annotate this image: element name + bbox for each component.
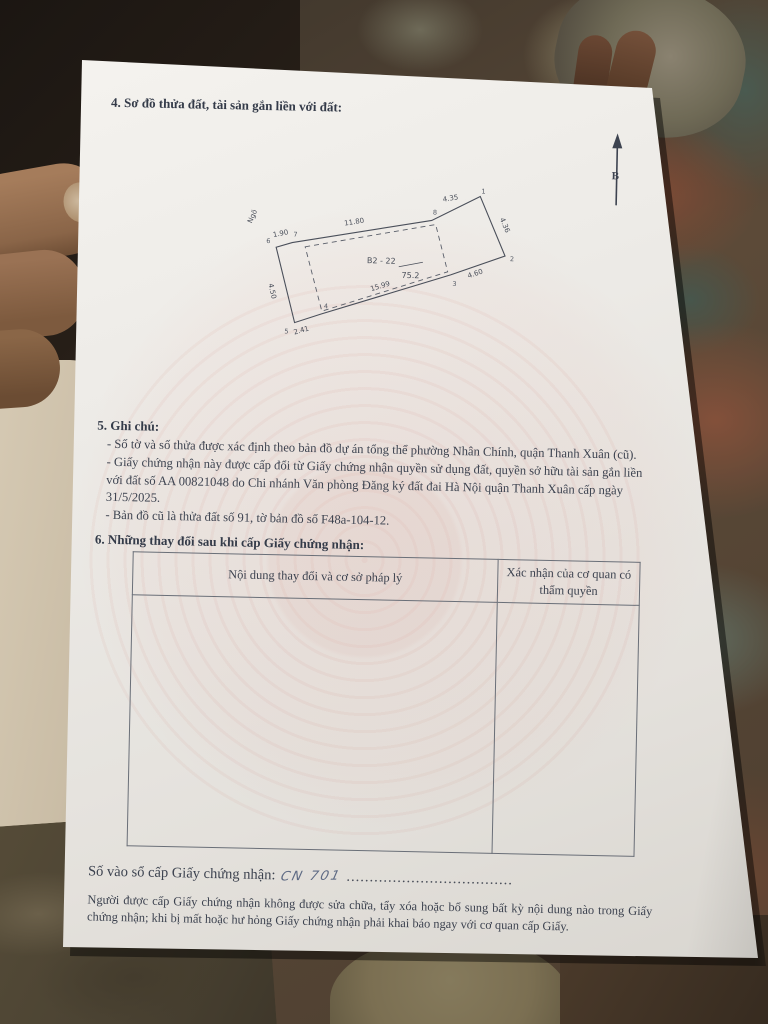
change-content-cell [127,595,497,854]
vertex-label: 5 [284,327,288,335]
certificate-content: 4. Sơ đồ thửa đất, tài sản gắn liền với … [46,54,677,977]
edge-label: 4.35 [442,193,459,203]
edge-label: 4.60 [467,268,484,281]
street-label: Ngõ [246,208,259,224]
vertex-label: 2 [510,255,514,263]
changes-table: Nội dung thay đổi và cơ sở pháp lý Xác n… [127,551,641,857]
vertex-label: 8 [433,208,437,216]
serial-label: Số vào sổ cấp Giấy chứng nhận: [88,863,276,883]
col-authority-confirm: Xác nhận của cơ quan có thẩm quyền [497,559,640,605]
serial-handwritten-value: CN 701 [279,868,343,887]
building-footprint-dashed [304,222,449,314]
section4-heading: 4. Sơ đồ thửa đất, tài sản gắn liền với … [111,95,342,116]
vertex-label: 4 [324,302,328,310]
serial-number-line: Số vào sổ cấp Giấy chứng nhận: CN 701 ..… [88,861,648,893]
edge-label: 4.50 [266,283,277,300]
col-change-content: Nội dung thay đổi và cơ sở pháp lý [132,552,498,603]
plot-area-label: 75.2 [401,271,419,280]
edge-label: 4.36 [498,217,512,235]
edge-label: 11.80 [344,217,365,228]
certificate-notice: Người được cấp Giấy chứng nhận không đượ… [87,891,653,938]
north-label: B [612,170,620,182]
edge-label: 2.41 [293,325,310,337]
plot-code-label: B2 - 22 [367,256,396,266]
authority-confirm-cell [492,602,639,856]
dotted-leader: .................................... [346,869,513,888]
vertex-label: 3 [452,280,456,288]
parcel-diagram: 1.90 11.80 4.35 4.36 4.60 15.99 2.41 4.5… [237,179,533,363]
lower-text-block: 5. Ghi chú: - Số tờ và số thửa được xác … [87,416,658,937]
edge-label: 1.90 [272,228,289,239]
photo-scene: 4. Sơ đồ thửa đất, tài sản gắn liền với … [0,0,768,1024]
vertex-label: 6 [266,237,270,245]
edge-label: 15.99 [370,280,392,293]
north-arrow-icon: B [602,131,632,212]
vertex-label: 1 [481,187,485,195]
table-body-row [127,595,639,857]
vertex-label: 7 [293,231,297,239]
